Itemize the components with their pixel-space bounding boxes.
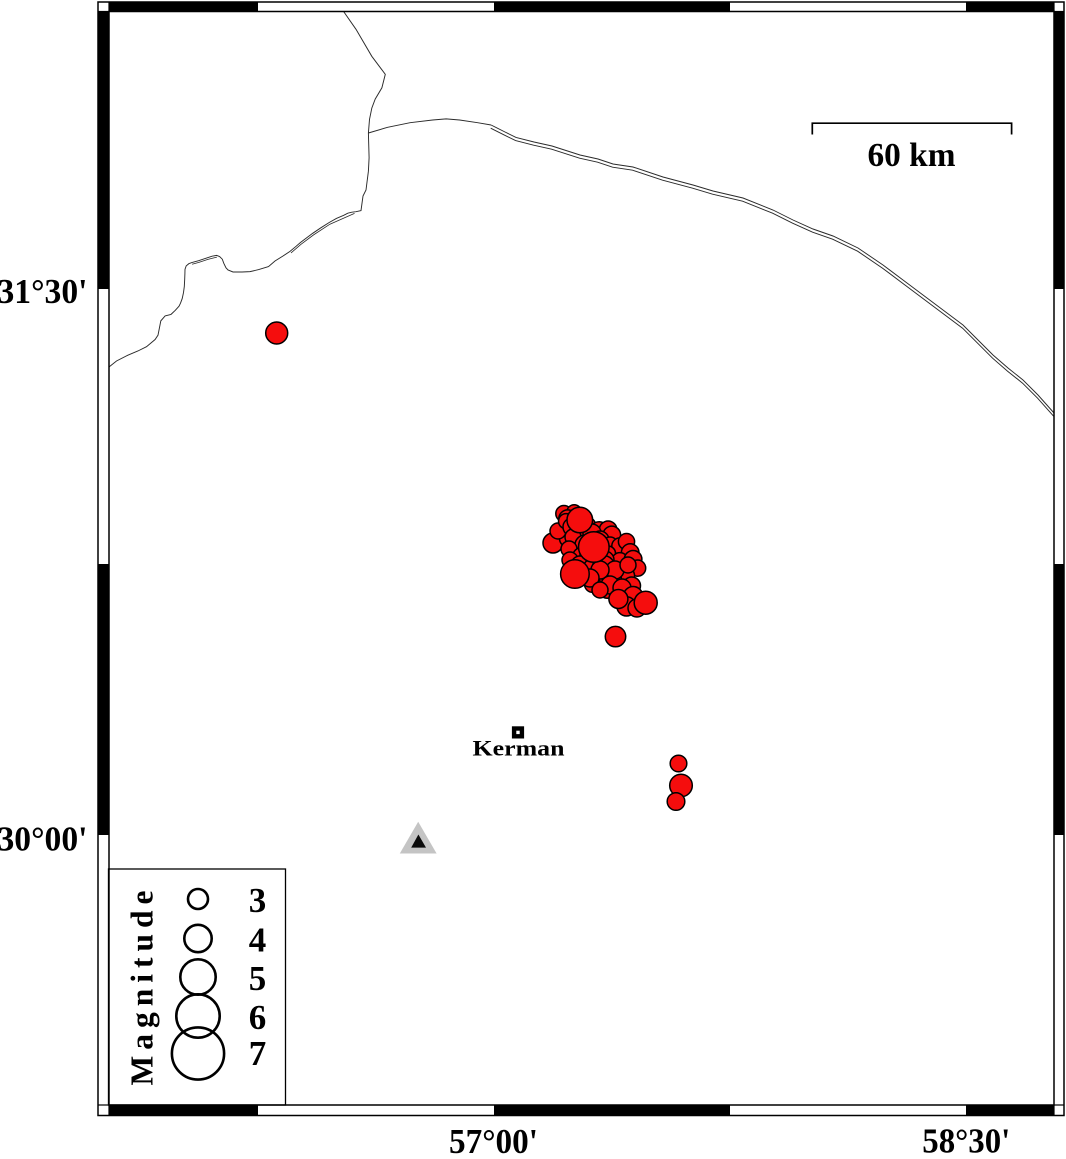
svg-text:30°00': 30°00' — [0, 820, 88, 859]
svg-text:Kerman: Kerman — [473, 736, 566, 761]
svg-text:4: 4 — [249, 921, 267, 960]
svg-text:5: 5 — [249, 959, 267, 998]
svg-text:6: 6 — [249, 998, 267, 1037]
svg-text:Magnitude: Magnitude — [125, 887, 160, 1086]
svg-text:60 km: 60 km — [868, 137, 956, 174]
svg-text:7: 7 — [249, 1034, 267, 1073]
svg-text:57°00': 57°00' — [449, 1122, 538, 1154]
svg-text:31°30': 31°30' — [0, 272, 88, 311]
svg-text:58°30': 58°30' — [922, 1122, 1010, 1155]
svg-text:3: 3 — [249, 881, 267, 920]
